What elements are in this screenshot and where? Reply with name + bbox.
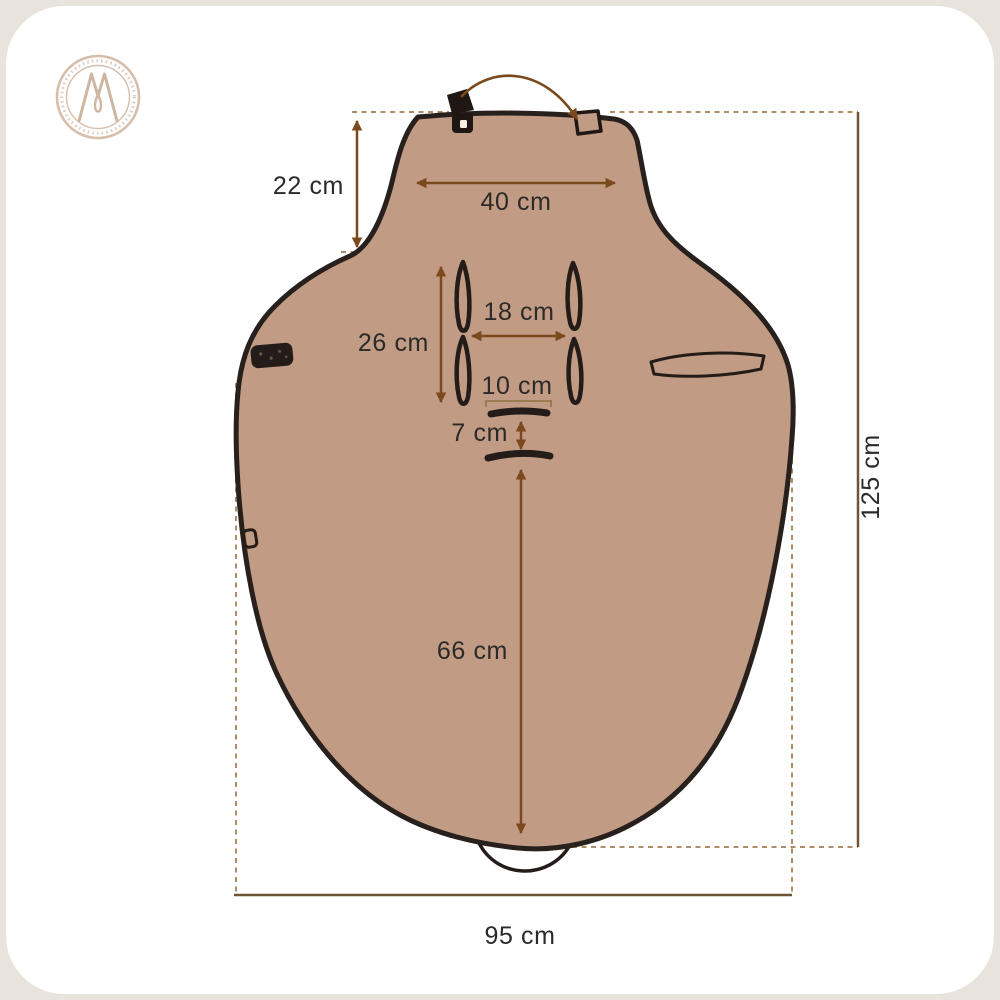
dim-seat-length-label: 66 cm [437,637,508,665]
brand-logo-icon [57,56,139,138]
dim-slot-width-label: 10 cm [481,372,552,400]
velcro-patch-body [250,342,294,369]
dim-hood-height-label: 22 cm [273,172,344,200]
footmuff-outline [236,113,793,849]
velcro-patch [250,342,294,369]
dim-strap-height-label: 26 cm [358,329,429,357]
hood-clip-upper [447,89,474,114]
dimension-diagram: 22 cm 40 cm 26 cm 18 cm 10 cm 7 cm 66 cm… [0,0,1000,1000]
dim-total-width-label: 95 cm [484,922,555,950]
dim-slot-gap-label: 7 cm [451,419,508,447]
dim-strap-gap-label: 18 cm [483,298,554,326]
dim-top-width-label: 40 cm [480,188,551,216]
dim-total-length-label: 125 cm [857,434,885,520]
crotch-slot-upper [491,411,547,414]
toggle-window [575,111,601,134]
logo-droplet-icon [95,95,101,112]
hood-clip-buckle-mark [460,120,467,128]
